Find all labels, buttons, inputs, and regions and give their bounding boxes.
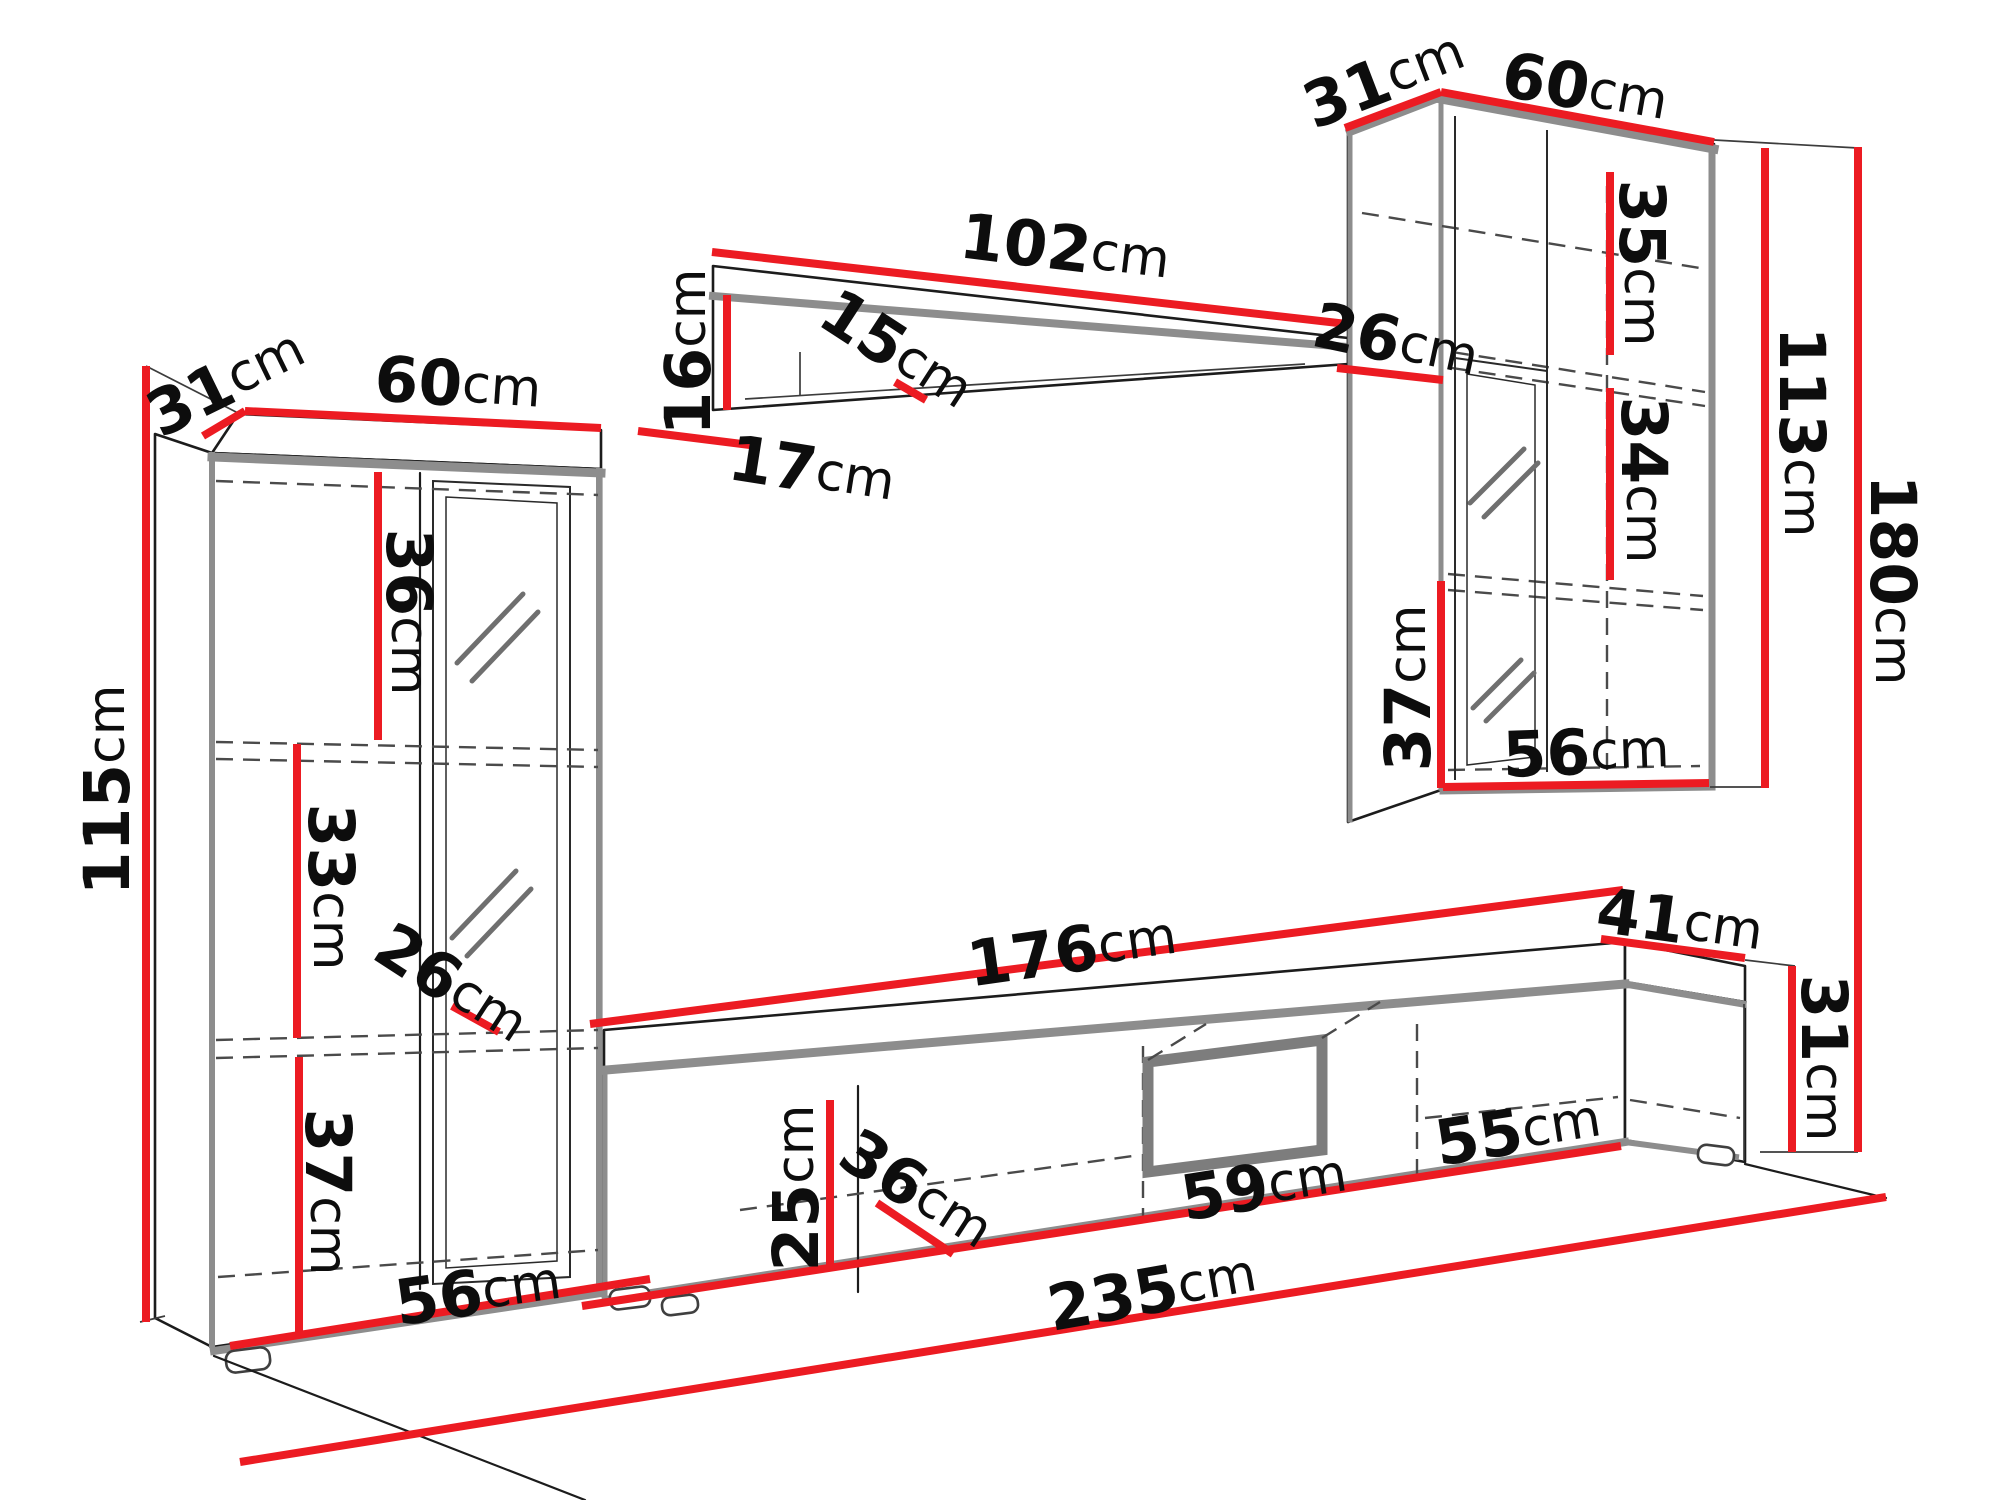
dim-label-left-cabinet-middle-section: 33cm: [295, 804, 368, 971]
dim-label-right-cabinet-top-section: 35cm: [1606, 180, 1679, 347]
floor-line-left: [214, 1356, 585, 1500]
dim-label-tv-stand-height: 31cm: [1788, 975, 1861, 1142]
dim-label-wall-shelf-height: 16cm: [652, 269, 725, 436]
dim-label-wall-unit-total-height: 180cm: [1857, 475, 1930, 686]
dim-label-total-width: 235cm: [1042, 1237, 1262, 1345]
dim-label-right-cabinet-height: 113cm: [1766, 327, 1839, 538]
ext-top-right: [1714, 140, 1858, 148]
dim-label-wall-shelf-gap: 17cm: [724, 421, 900, 519]
dim-label-right-cabinet-middle-section: 34cm: [1608, 397, 1681, 564]
dim-label-left-cabinet-top-section: 36cm: [373, 529, 446, 696]
dim-label-tv-stand-interior-height: 25cm: [760, 1105, 833, 1272]
furniture-dimension-diagram: 31cm 60cm 115cm 36cm 33cm 26cm 37cm 56cm…: [0, 0, 2000, 1500]
tv-stand-right-face: [1625, 982, 1745, 1162]
dim-label-right-cabinet-bottom-section: 37cm: [1372, 605, 1445, 772]
dim-label-left-cabinet-bottom-section: 37cm: [292, 1109, 365, 1276]
dim-label-right-cabinet-interior-width: 56cm: [1501, 713, 1670, 792]
left-cabinet-side-face: [155, 434, 212, 1347]
floor-line-right: [1745, 1164, 1886, 1198]
diagram-stage: 31cm 60cm 115cm 36cm 33cm 26cm 37cm 56cm…: [0, 0, 2000, 1500]
dim-label-left-cabinet-height: 115cm: [71, 685, 144, 896]
dim-label-left-cabinet-width: 60cm: [372, 342, 544, 426]
tv-stand-foot: [1697, 1144, 1735, 1166]
tv-stand-foot: [661, 1294, 699, 1316]
